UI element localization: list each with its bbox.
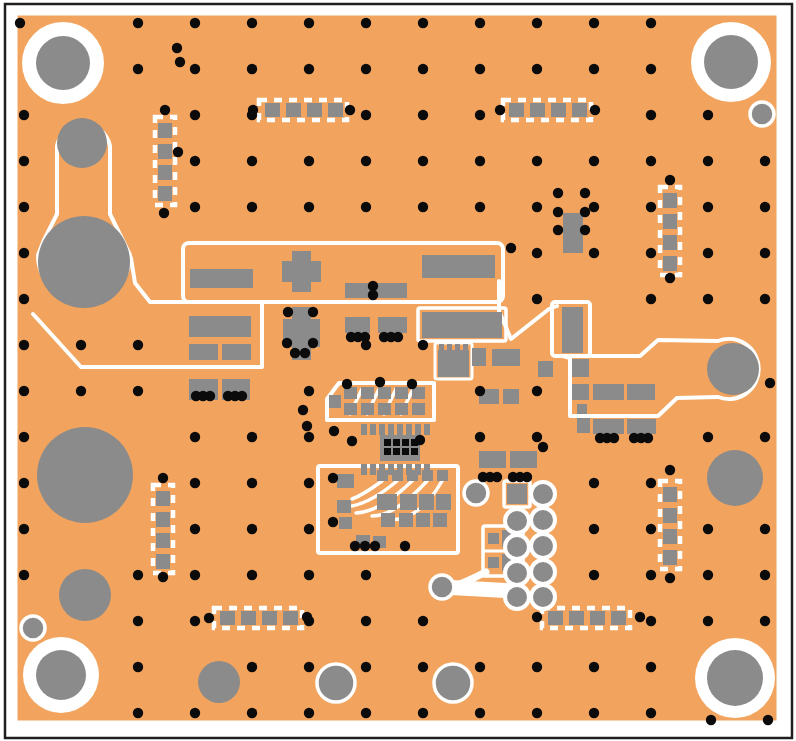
via-dot xyxy=(703,432,713,442)
via-dot xyxy=(475,156,485,166)
qfn-pin-pad xyxy=(406,464,412,475)
via-dot xyxy=(580,188,590,198)
via-dot xyxy=(589,202,599,212)
qfn-pin-pad xyxy=(388,424,394,435)
mounting-hole-bottom-right xyxy=(695,638,775,718)
smd-pad xyxy=(433,513,447,527)
via-dot xyxy=(393,332,403,342)
via-dot xyxy=(646,18,656,28)
via-dot xyxy=(247,662,257,672)
pin-pad-circle xyxy=(531,508,555,532)
smd-pad xyxy=(455,344,460,351)
via-dot xyxy=(646,294,656,304)
smd-pad xyxy=(627,384,655,400)
footprint-pad xyxy=(328,103,343,117)
pin-pad-circle xyxy=(531,560,555,584)
ringed-pad xyxy=(430,575,454,599)
via-dot xyxy=(532,18,542,28)
ringed-pad xyxy=(750,102,774,126)
via-dot xyxy=(190,110,200,120)
via-dot xyxy=(19,156,29,166)
qfn-pin-pad xyxy=(361,464,367,475)
via-dot xyxy=(19,386,29,396)
via-dot xyxy=(76,386,86,396)
via-dot xyxy=(646,616,656,626)
via-dot xyxy=(302,421,312,431)
via-dot xyxy=(304,202,314,212)
footprint-pad xyxy=(548,611,563,625)
qfn-pin-pad xyxy=(379,464,385,475)
via-dot xyxy=(205,391,215,401)
via-dot xyxy=(703,570,713,580)
via-dot xyxy=(589,248,599,258)
footprint-pad xyxy=(530,103,545,117)
via-dot xyxy=(665,465,675,475)
via-dot xyxy=(703,156,713,166)
via-dot xyxy=(160,105,170,115)
via-dot xyxy=(304,708,314,718)
via-dot xyxy=(247,708,257,718)
via-dot xyxy=(304,570,314,580)
smd-pad xyxy=(572,384,589,400)
via-dot xyxy=(538,442,548,452)
via-dot xyxy=(133,18,143,28)
via-dot xyxy=(703,294,713,304)
footprint-pad xyxy=(156,491,170,506)
via-dot xyxy=(589,156,599,166)
pin-pad-circle xyxy=(505,509,529,533)
via-dot xyxy=(237,391,247,401)
via-dot xyxy=(760,202,770,212)
via-dot xyxy=(190,18,200,28)
footprint-pad xyxy=(262,611,277,625)
smd-pad xyxy=(189,344,218,360)
via-dot xyxy=(304,64,314,74)
footprint-pad xyxy=(663,487,677,502)
smd-pad xyxy=(378,403,391,415)
smd-pad xyxy=(400,494,417,510)
footprint-pad xyxy=(509,103,524,117)
footprint-pad xyxy=(307,103,322,117)
via-dot xyxy=(361,156,371,166)
via-dot xyxy=(204,613,214,623)
smd-pad xyxy=(577,404,587,414)
ringed-pad xyxy=(317,664,355,702)
smd-pad xyxy=(577,418,590,433)
smd-pad xyxy=(361,387,374,399)
smd-pad xyxy=(329,395,341,408)
via-dot xyxy=(532,432,542,442)
via-dot xyxy=(590,105,600,115)
via-dot xyxy=(173,147,183,157)
copper-circle xyxy=(707,343,759,395)
via-dot xyxy=(19,432,29,442)
smd-pad xyxy=(344,403,357,415)
via-dot xyxy=(418,662,428,672)
via-dot xyxy=(345,105,355,115)
smd-pad xyxy=(538,361,553,377)
via-dot xyxy=(475,386,485,396)
via-dot xyxy=(418,616,428,626)
via-dot xyxy=(19,524,29,534)
footprint-pad xyxy=(158,186,172,201)
pin-pad-circle xyxy=(505,535,529,559)
via-dot xyxy=(532,156,542,166)
smd-pad xyxy=(282,261,321,282)
qfn-pin-pad xyxy=(397,424,403,435)
via-dot xyxy=(368,281,378,291)
via-dot xyxy=(532,248,542,258)
footprint-pad xyxy=(156,554,170,569)
via-dot xyxy=(415,435,425,445)
smd-pad xyxy=(337,500,351,513)
thermal-via xyxy=(384,439,391,446)
via-dot xyxy=(350,541,360,551)
footprint-pad xyxy=(590,611,605,625)
via-dot xyxy=(133,708,143,718)
smd-pad xyxy=(572,359,589,377)
via-dot xyxy=(760,570,770,580)
footprint-pad xyxy=(663,193,677,208)
via-dot xyxy=(133,616,143,626)
via-dot xyxy=(158,572,168,582)
via-dot xyxy=(418,156,428,166)
via-dot xyxy=(175,57,185,67)
via-dot xyxy=(646,110,656,120)
drill-hole xyxy=(36,36,90,90)
via-dot xyxy=(646,64,656,74)
footprint-pad xyxy=(265,103,280,117)
smd-pad xyxy=(488,533,499,544)
footprint-pad xyxy=(663,214,677,229)
footprint-pad xyxy=(158,123,172,138)
smd-pad xyxy=(222,344,251,360)
via-dot xyxy=(19,478,29,488)
via-dot xyxy=(360,541,370,551)
via-dot xyxy=(553,188,563,198)
via-dot xyxy=(247,478,257,488)
smd-pad xyxy=(416,513,430,527)
via-dot xyxy=(763,715,773,725)
via-dot xyxy=(418,64,428,74)
via-dot xyxy=(703,248,713,258)
smd-pad xyxy=(438,350,469,377)
thermal-via xyxy=(393,448,400,455)
via-dot xyxy=(304,662,314,672)
ringed-pad xyxy=(434,664,472,702)
via-dot xyxy=(418,340,428,350)
via-dot xyxy=(418,18,428,28)
copper-circle xyxy=(707,450,763,506)
thermal-via xyxy=(393,439,400,446)
smd-pad xyxy=(439,344,444,351)
via-dot xyxy=(375,377,385,387)
via-dot xyxy=(304,386,314,396)
via-dot xyxy=(706,715,716,725)
qfn-pin-pad xyxy=(424,424,430,435)
smd-pad xyxy=(488,557,499,568)
via-dot xyxy=(190,478,200,488)
smd-pad xyxy=(378,317,407,333)
footprint-pad xyxy=(663,235,677,250)
via-dot xyxy=(635,612,645,622)
via-dot xyxy=(133,570,143,580)
smd-pad xyxy=(189,316,251,337)
smd-pad xyxy=(361,403,374,415)
via-dot xyxy=(347,436,357,446)
smd-pad xyxy=(378,387,391,399)
smd-pad xyxy=(419,494,434,510)
via-dot xyxy=(190,64,200,74)
footprint-pad xyxy=(283,611,298,625)
qfn-pin-pad xyxy=(370,464,376,475)
smd-pad xyxy=(627,419,656,434)
copper-circle xyxy=(57,118,107,168)
via-dot xyxy=(190,708,200,718)
via-dot xyxy=(646,248,656,258)
footprint-pad xyxy=(286,103,301,117)
via-dot xyxy=(532,386,542,396)
via-dot xyxy=(247,570,257,580)
smd-pad xyxy=(190,269,253,288)
smd-pad xyxy=(381,513,395,527)
smd-pad xyxy=(345,317,370,333)
via-dot xyxy=(665,273,675,283)
copper-circle xyxy=(37,427,133,523)
via-dot xyxy=(15,18,25,28)
via-dot xyxy=(646,662,656,672)
via-dot xyxy=(304,478,314,488)
via-dot xyxy=(609,433,619,443)
via-dot xyxy=(290,348,300,358)
via-dot xyxy=(190,202,200,212)
footprint-pad xyxy=(241,611,256,625)
via-dot xyxy=(400,541,410,551)
via-dot xyxy=(282,338,292,348)
pin-pad-circle xyxy=(531,482,555,506)
pcb-screenshot xyxy=(0,0,796,741)
ringed-pad xyxy=(464,481,488,505)
via-dot xyxy=(247,18,257,28)
via-dot xyxy=(760,156,770,166)
via-dot xyxy=(646,524,656,534)
footprint-pad xyxy=(158,144,172,159)
smd-pad xyxy=(562,307,583,353)
pin-pad-circle xyxy=(505,561,529,585)
via-dot xyxy=(328,517,338,527)
thermal-via xyxy=(411,448,418,455)
smd-pad xyxy=(447,344,452,351)
via-dot xyxy=(304,156,314,166)
smd-pad xyxy=(593,419,624,434)
smd-pad xyxy=(337,474,354,488)
qfn-pin-pad xyxy=(379,424,385,435)
pin-pad-circle xyxy=(531,534,555,558)
via-dot xyxy=(361,570,371,580)
smd-pad xyxy=(510,451,537,468)
via-dot xyxy=(308,338,318,348)
via-dot xyxy=(172,43,182,53)
via-dot xyxy=(553,207,563,217)
pcb-layout-image xyxy=(0,0,796,741)
via-dot xyxy=(760,432,770,442)
via-dot xyxy=(589,64,599,74)
via-dot xyxy=(665,175,675,185)
via-dot xyxy=(19,570,29,580)
footprint-pad xyxy=(551,103,566,117)
via-dot xyxy=(532,612,542,622)
via-dot xyxy=(133,64,143,74)
qfn-pin-pad xyxy=(415,464,421,475)
via-dot xyxy=(703,202,713,212)
via-dot xyxy=(76,340,86,350)
drill-hole xyxy=(36,650,86,700)
via-dot xyxy=(760,616,770,626)
via-dot xyxy=(361,110,371,120)
via-dot xyxy=(247,64,257,74)
via-dot xyxy=(328,473,338,483)
via-dot xyxy=(589,570,599,580)
via-dot xyxy=(475,662,485,672)
via-dot xyxy=(589,478,599,488)
via-dot xyxy=(643,433,653,443)
via-dot xyxy=(304,18,314,28)
mounting-hole-bottom-left xyxy=(23,637,99,713)
via-dot xyxy=(506,243,516,253)
via-dot xyxy=(553,225,563,235)
via-dot xyxy=(283,307,293,317)
smd-pad xyxy=(339,517,352,529)
pin-pad-circle xyxy=(505,585,529,609)
via-dot xyxy=(298,405,308,415)
smd-pad xyxy=(395,403,408,415)
smd-pad xyxy=(593,384,624,400)
via-dot xyxy=(495,105,505,115)
footprint-pad xyxy=(663,550,677,565)
via-dot xyxy=(589,662,599,672)
via-dot xyxy=(329,426,339,436)
footprint-pad xyxy=(569,611,584,625)
via-dot xyxy=(19,248,29,258)
via-dot xyxy=(522,472,532,482)
via-dot xyxy=(133,386,143,396)
qfn-pin-pad xyxy=(397,464,403,475)
via-dot xyxy=(361,662,371,672)
via-dot xyxy=(19,340,29,350)
qfn-pin-pad xyxy=(361,424,367,435)
via-dot xyxy=(19,110,29,120)
qfn-pin-pad xyxy=(370,424,376,435)
via-dot xyxy=(190,156,200,166)
via-dot xyxy=(589,524,599,534)
smd-pad xyxy=(422,312,502,338)
via-dot xyxy=(361,202,371,212)
via-dot xyxy=(532,202,542,212)
via-dot xyxy=(361,64,371,74)
footprint-pad xyxy=(220,611,235,625)
via-dot xyxy=(475,18,485,28)
smd-pad xyxy=(472,348,486,366)
via-dot xyxy=(308,307,318,317)
via-dot xyxy=(342,379,352,389)
copper-circle xyxy=(38,216,130,308)
qfn-pin-pad xyxy=(406,424,412,435)
via-dot xyxy=(418,202,428,212)
qfn-pin-pad xyxy=(388,464,394,475)
via-dot xyxy=(360,332,370,342)
qfn-pin-pad xyxy=(424,464,430,475)
footprint-pad xyxy=(663,529,677,544)
via-dot xyxy=(190,524,200,534)
smd-pad xyxy=(492,349,520,366)
via-dot xyxy=(589,18,599,28)
via-dot xyxy=(532,708,542,718)
via-dot xyxy=(532,662,542,672)
via-dot xyxy=(248,105,258,115)
via-dot xyxy=(703,616,713,626)
smd-pad xyxy=(412,403,425,415)
via-dot xyxy=(418,110,428,120)
smd-pad xyxy=(399,513,413,527)
via-dot xyxy=(589,708,599,718)
via-dot xyxy=(760,524,770,534)
via-dot xyxy=(247,432,257,442)
via-dot xyxy=(407,379,417,389)
via-dot xyxy=(368,290,378,300)
via-dot xyxy=(190,432,200,442)
mounting-hole-top-left xyxy=(22,22,104,104)
via-dot xyxy=(765,378,775,388)
footprint-pad xyxy=(158,165,172,180)
via-dot xyxy=(646,570,656,580)
footprint-pad xyxy=(572,103,587,117)
via-dot xyxy=(158,473,168,483)
via-dot xyxy=(247,156,257,166)
via-dot xyxy=(703,110,713,120)
via-dot xyxy=(703,524,713,534)
smd-pad xyxy=(377,494,397,510)
thermal-via xyxy=(402,439,409,446)
ringed-pad xyxy=(21,616,45,640)
via-dot xyxy=(247,524,257,534)
via-dot xyxy=(475,432,485,442)
via-dot xyxy=(475,64,485,74)
drill-hole xyxy=(707,650,763,706)
via-dot xyxy=(19,202,29,212)
drill-hole xyxy=(704,35,758,89)
via-dot xyxy=(361,708,371,718)
smd-pad xyxy=(479,451,506,468)
thermal-via xyxy=(384,448,391,455)
smd-pad xyxy=(503,389,519,404)
via-dot xyxy=(475,110,485,120)
mounting-hole-top-right xyxy=(691,22,771,102)
smd-pad xyxy=(507,484,527,504)
via-dot xyxy=(646,156,656,166)
footprint-pad xyxy=(611,611,626,625)
footprint-pad xyxy=(663,256,677,271)
via-dot xyxy=(304,432,314,442)
via-dot xyxy=(760,294,770,304)
via-dot xyxy=(304,524,314,534)
via-dot xyxy=(159,208,169,218)
via-dot xyxy=(133,340,143,350)
smd-pad xyxy=(463,344,468,351)
via-dot xyxy=(646,708,656,718)
via-dot xyxy=(580,225,590,235)
via-dot xyxy=(646,478,656,488)
via-dot xyxy=(190,616,200,626)
